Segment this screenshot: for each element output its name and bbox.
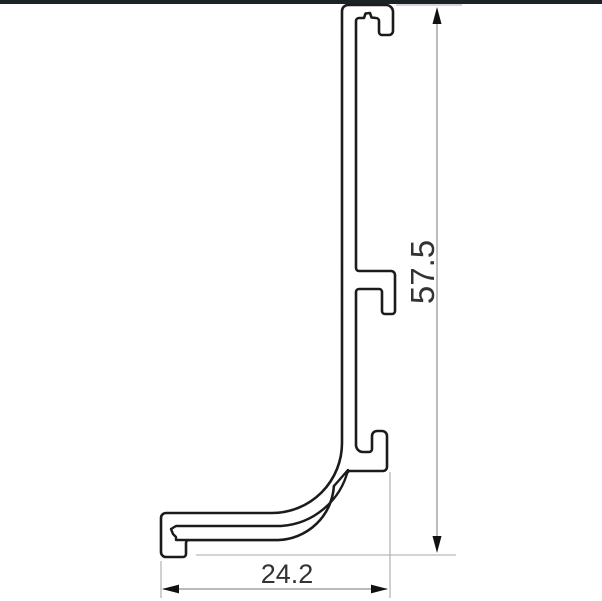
width-dimension-label: 24.2 xyxy=(261,559,314,589)
drawing-canvas: 57.5 24.2 xyxy=(0,0,602,601)
dimension-arrow-down-icon xyxy=(433,536,442,553)
height-dimension-label: 57.5 xyxy=(404,240,441,304)
profile-outline xyxy=(161,5,395,557)
dimension-arrow-up-icon xyxy=(433,7,442,24)
dimension-arrow-left-icon xyxy=(162,585,179,594)
dimension-arrow-right-icon xyxy=(371,585,388,594)
top-edge-bar xyxy=(0,0,602,4)
technical-drawing: 57.5 24.2 xyxy=(0,0,602,601)
